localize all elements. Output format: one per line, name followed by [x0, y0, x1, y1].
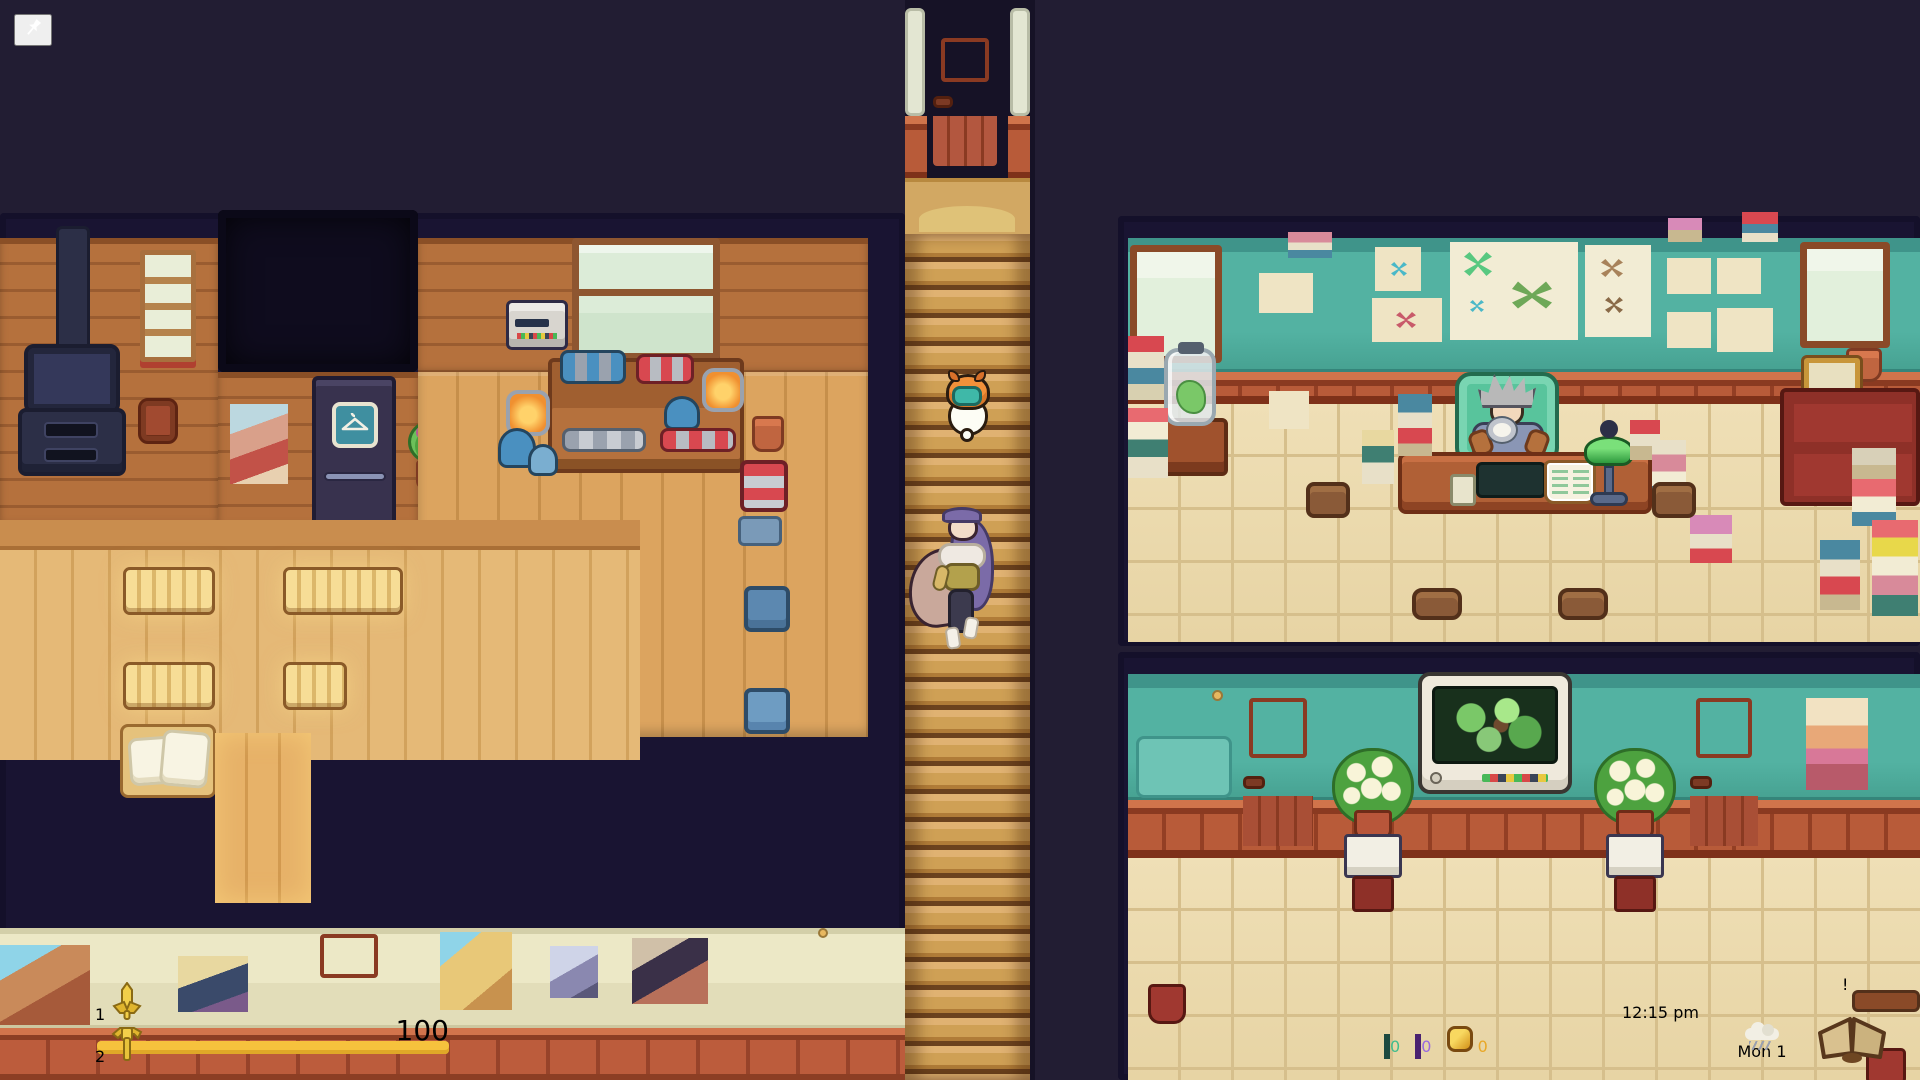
tv-knob: [1430, 772, 1442, 784]
hotbar-slot-1[interactable]: 1: [95, 982, 144, 1024]
stair-wainscot: [905, 116, 927, 180]
dumbbell-gray: [562, 428, 646, 452]
slot-key: 2: [95, 1047, 105, 1066]
terrarium-jar: [1164, 348, 1216, 426]
lamp-base: [1590, 492, 1628, 506]
lounge-door-right[interactable]: [1682, 658, 1774, 858]
kettlebell-orange: [702, 368, 744, 412]
library-armchair: [1240, 548, 1324, 642]
hallway-picture: [550, 946, 598, 998]
sauna-bench: [123, 662, 215, 710]
game-viewport: 100 1 2 0 0: [0, 0, 1920, 1080]
moth-frame: [1259, 273, 1313, 313]
stair-window: [905, 8, 925, 116]
butterfly-frame-orange: [1667, 312, 1711, 348]
desk-drawers: [1556, 514, 1648, 566]
pedestal: [1344, 834, 1402, 878]
red-cabinet: [1780, 388, 1920, 506]
equipment-box-blue2: [744, 688, 790, 734]
corgi-backpack: [952, 386, 982, 406]
currency-value: 0: [1478, 1037, 1488, 1056]
lounge-plant-left: [1130, 892, 1202, 1042]
gym-corridor: [215, 733, 311, 903]
tv-screen: [1432, 686, 1558, 764]
door-slats: [933, 116, 997, 166]
corgi-tail: [960, 428, 974, 442]
equipment-box-blue: [744, 586, 790, 632]
player-boot: [945, 626, 962, 650]
drawer-handle: [1281, 515, 1305, 524]
journal-alert: !: [1842, 975, 1848, 994]
dumbbell-red2: [660, 428, 736, 452]
slot-key: 1: [95, 1005, 105, 1024]
potted-plant-gym: [742, 362, 792, 458]
journal-button[interactable]: !: [1814, 1007, 1890, 1063]
drawer-handle: [1840, 417, 1866, 426]
ladder-rung: [145, 303, 191, 310]
bankers-lamp: [1582, 418, 1636, 508]
hanger-sign: [332, 402, 378, 448]
dumbbell-stand: [740, 460, 788, 512]
door-slats: [1243, 796, 1313, 846]
terracotta-pot: [752, 416, 784, 452]
clock-panel: 12:15 pm Mon 1 !: [1600, 1003, 1906, 1065]
lounge-ac-unit: [1136, 680, 1232, 724]
hallway-picture: [632, 938, 708, 1004]
dumbbell-red: [636, 354, 694, 384]
towel-bench: [120, 724, 216, 798]
currency-value: 0: [1421, 1037, 1431, 1056]
wall-lamp: [1352, 662, 1394, 706]
stair-landing: [905, 178, 1030, 234]
plant-pot-red: [1148, 984, 1186, 1024]
magnifying-glass: [1488, 418, 1516, 442]
door-panel: [941, 38, 989, 82]
kettlebell-teal: [664, 396, 700, 430]
towel: [159, 729, 212, 789]
currency-panel: 0 0 0: [1384, 1026, 1488, 1070]
energy-bar: 100: [15, 1012, 463, 1060]
sauna-room: [0, 520, 640, 760]
ladder-rung: [145, 277, 191, 284]
gold-nugget-icon: [1447, 1026, 1473, 1052]
machine-frame: [24, 344, 120, 414]
door-handle: [1690, 776, 1712, 789]
player-character[interactable]: [908, 505, 1008, 663]
flower-stand: [1592, 748, 1678, 938]
rain-cloud-icon: [1745, 1022, 1779, 1042]
lamp-top: [1600, 420, 1618, 438]
notice-panel: [1136, 736, 1232, 798]
library-couch: [1128, 556, 1226, 642]
jar-plant: [1176, 380, 1206, 414]
npc-hair: [1478, 374, 1536, 408]
butterfly-green: [1464, 252, 1492, 276]
corgi-ear: [948, 370, 960, 382]
leaf: [753, 379, 782, 413]
book-stack: [1362, 430, 1394, 484]
book-stack: [1128, 408, 1168, 478]
drawer-handle: [1452, 522, 1478, 531]
moth-green: [1512, 280, 1552, 310]
stair-wainscot: [1008, 116, 1030, 180]
chair-small: [1652, 482, 1696, 518]
machine-slot2: [44, 448, 98, 462]
door-bar: [324, 472, 386, 481]
book-stack: [1288, 232, 1332, 258]
desk-blotter: [1476, 462, 1546, 498]
hammer-icon: [110, 1024, 144, 1062]
door-panel: [320, 934, 378, 978]
cloud-puff: [1762, 1024, 1774, 1036]
butterfly-brown: [1601, 259, 1623, 277]
landing-rug: [919, 206, 1015, 232]
rain-streaks: [1749, 1041, 1771, 1050]
book-stack: [1690, 515, 1732, 563]
changing-room-door[interactable]: [312, 376, 396, 528]
moth-frame-small: [1667, 258, 1711, 294]
stair-top-door[interactable]: [927, 0, 1011, 176]
tv-set: [1418, 672, 1572, 794]
window-bar: [579, 289, 713, 296]
radio-display: [515, 319, 549, 327]
hallway-ac-unit: [742, 918, 838, 960]
machine-slot: [44, 422, 98, 438]
hotbar: 1 2: [95, 982, 144, 1066]
player-hair-top: [942, 507, 982, 523]
ac-dot: [818, 928, 828, 938]
bench-seat: [1244, 908, 1350, 990]
book-stack: [1128, 336, 1164, 400]
tv-buttons: [1482, 774, 1548, 782]
wooden-barrel: [138, 398, 178, 444]
currency-value: 0: [1390, 1037, 1400, 1056]
dumbbell-blue: [560, 350, 626, 384]
moth-frame-big: [1717, 308, 1773, 352]
stool: [1558, 588, 1608, 620]
pedestal-base: [1352, 876, 1394, 912]
book-stack: [1668, 218, 1702, 242]
butterfly-display-case2: [1585, 245, 1651, 337]
shelf-books: [1233, 333, 1355, 373]
pushpin-icon: [22, 17, 44, 39]
pedestal: [1606, 834, 1664, 878]
butterfly-frame-teal: [1375, 247, 1421, 291]
lamp-shade: [1584, 436, 1634, 466]
door-panel: [1249, 698, 1307, 758]
bench-seat: [1244, 996, 1350, 1080]
machine-column: [56, 226, 90, 356]
butterfly-teal-small: [1470, 300, 1484, 312]
index-card-box: [1450, 474, 1476, 506]
lamp-stem: [1604, 466, 1614, 494]
gym-window: [572, 238, 720, 360]
book-stack: [1852, 448, 1896, 526]
drawer-handle: [1281, 465, 1305, 474]
exercise-machine: [18, 226, 128, 476]
sauna-bench: [283, 662, 347, 710]
lounge-door-left[interactable]: [1235, 658, 1329, 858]
pedestal-base: [1614, 876, 1656, 912]
desk-drawers: [1406, 514, 1526, 566]
drawer-handle: [1588, 522, 1614, 531]
gym-mat-blue: [738, 516, 782, 546]
energy-fill: [97, 1041, 449, 1054]
leaf: [1841, 320, 1879, 347]
shelf-books: [1665, 368, 1783, 408]
hallway-picture: [178, 956, 248, 1012]
kettlebell-blue-floor2: [528, 444, 558, 476]
library-bookshelf2: [1657, 240, 1795, 435]
book-lines: [1552, 470, 1568, 496]
machine-base: [18, 408, 126, 476]
door-panel: [1696, 698, 1752, 758]
hallway-picture: [440, 932, 512, 1010]
door-handle: [1243, 776, 1265, 789]
beetle-frame: [1269, 391, 1309, 429]
hanger-icon: [341, 413, 369, 437]
stool: [1412, 588, 1462, 620]
sauna-bench: [283, 567, 403, 615]
radio: [506, 300, 568, 350]
door-slats: [1690, 796, 1758, 846]
unlit-room: [218, 210, 418, 372]
gym-poster: [230, 404, 288, 484]
drawer-handle: [1588, 546, 1614, 555]
hotbar-slot-2[interactable]: 2: [95, 1024, 144, 1066]
sunset-picture: [1806, 698, 1868, 790]
book-stack: [1742, 212, 1778, 242]
pin-button[interactable]: [14, 14, 52, 46]
open-book-icon: [1814, 1013, 1890, 1065]
ladder-window: [140, 250, 196, 362]
ladder-rung: [145, 329, 191, 336]
ac-dot: [1212, 690, 1223, 701]
clock-time: 12:15 pm: [1622, 1003, 1699, 1022]
radio-lights: [517, 333, 557, 339]
drawer-handle: [1174, 450, 1196, 458]
hallway-door[interactable]: [308, 918, 400, 1024]
weight-rack: [548, 358, 744, 473]
wall-lamp: [1580, 662, 1622, 706]
butterfly-display-case: [1450, 242, 1578, 340]
butterfly-brown2: [1605, 297, 1623, 313]
book-stack: [1398, 394, 1432, 456]
stair-window: [1010, 8, 1030, 116]
sauna-bench: [123, 567, 215, 615]
door-handle: [933, 96, 953, 108]
book-stack: [1820, 540, 1860, 610]
cabinet-drawer: [1794, 404, 1912, 442]
chair-small: [1306, 482, 1350, 518]
jar-lid: [1178, 342, 1204, 354]
player-torso: [944, 563, 980, 591]
pet-corgi[interactable]: [938, 372, 996, 444]
butterfly-frame-green: [1717, 258, 1761, 294]
sword-icon: [110, 982, 144, 1020]
book-stack: [1872, 520, 1918, 616]
